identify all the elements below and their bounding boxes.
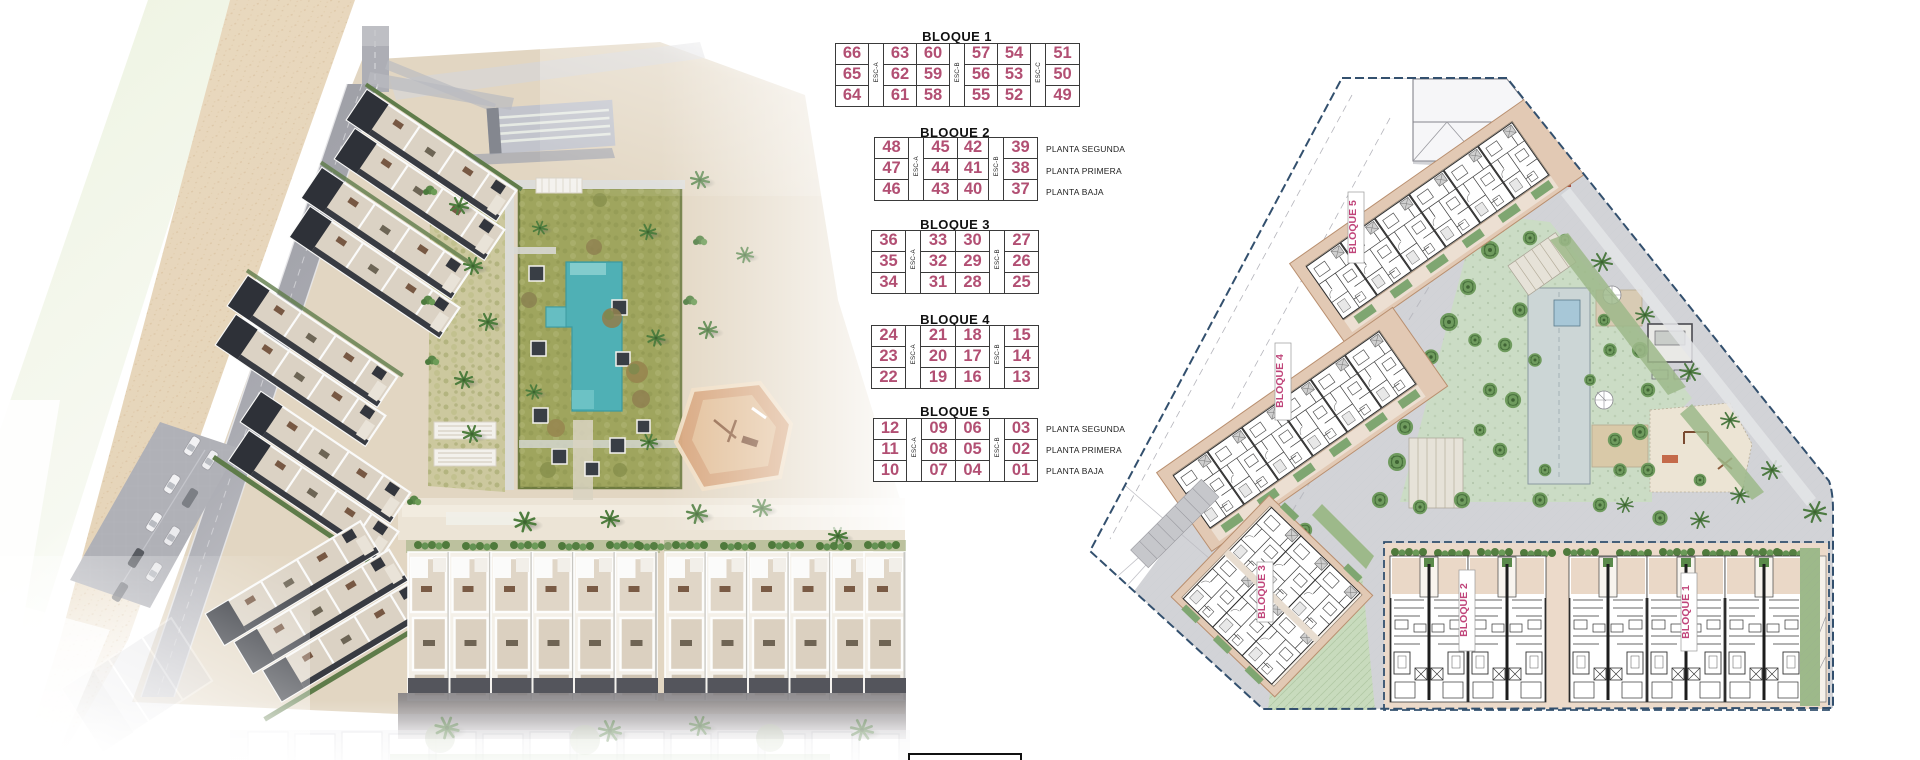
svg-text:BLOQUE 5: BLOQUE 5: [1347, 200, 1359, 254]
svg-text:BLOQUE 2: BLOQUE 2: [1458, 583, 1470, 637]
svg-text:BLOQUE 4: BLOQUE 4: [1274, 354, 1286, 408]
svg-text:BLOQUE 3: BLOQUE 3: [1256, 565, 1268, 619]
svg-text:BLOQUE 1: BLOQUE 1: [1680, 585, 1692, 639]
